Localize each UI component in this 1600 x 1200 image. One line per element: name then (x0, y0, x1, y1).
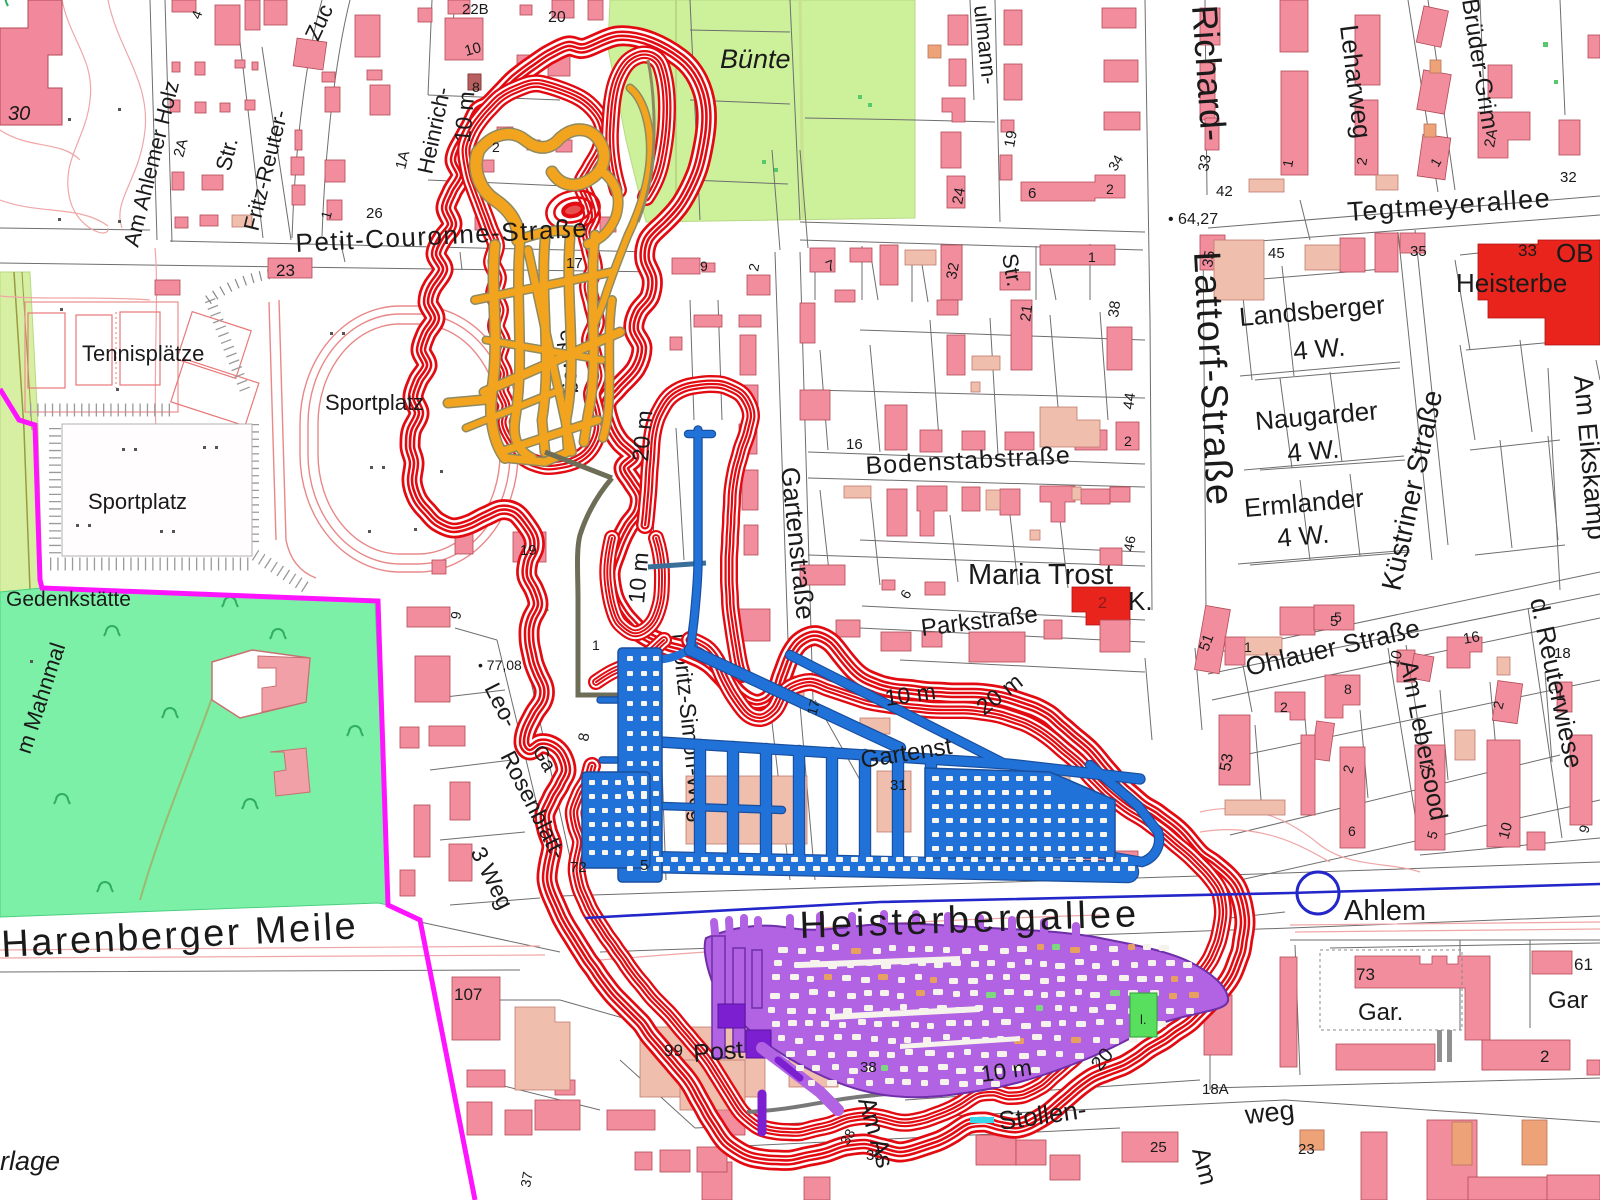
svg-text:19: 19 (520, 542, 537, 559)
svg-text:10 m: 10 m (449, 90, 479, 143)
svg-text:73: 73 (1356, 965, 1375, 984)
svg-text:Gar.: Gar. (1358, 999, 1403, 1026)
svg-text:Gar: Gar (1548, 987, 1588, 1014)
svg-text:23: 23 (276, 261, 295, 280)
svg-text:2: 2 (492, 139, 500, 155)
svg-text:46: 46 (1120, 534, 1138, 552)
svg-text:37: 37 (517, 1170, 535, 1188)
svg-text:2: 2 (1124, 433, 1132, 449)
svg-text:61: 61 (1574, 955, 1593, 974)
svg-text:42: 42 (1216, 183, 1233, 200)
svg-text:8: 8 (472, 79, 480, 95)
svg-text:l.: l. (1140, 1012, 1147, 1027)
svg-text:23: 23 (1298, 1141, 1315, 1158)
svg-text:33: 33 (1195, 153, 1215, 172)
svg-text:72: 72 (570, 859, 587, 876)
svg-text:33: 33 (1518, 241, 1537, 260)
svg-text:31: 31 (890, 777, 907, 794)
svg-text:Post: Post (692, 1036, 744, 1068)
svg-text:6: 6 (1028, 185, 1036, 202)
svg-text:4 W.: 4 W. (1276, 519, 1330, 553)
svg-text:1: 1 (1556, 687, 1564, 703)
svg-text:20: 20 (548, 9, 566, 26)
svg-text:6: 6 (1348, 823, 1356, 839)
svg-text:53: 53 (1217, 752, 1237, 773)
svg-text:Sportplatz: Sportplatz (88, 489, 187, 514)
svg-text:44: 44 (1120, 392, 1139, 411)
svg-text:107: 107 (454, 985, 482, 1004)
svg-text:Heisterbe: Heisterbe (1456, 268, 1567, 298)
svg-text:• 77,08: • 77,08 (478, 657, 522, 673)
svg-text:38: 38 (1105, 300, 1124, 319)
svg-text:2: 2 (1098, 595, 1107, 612)
svg-text:35: 35 (1199, 249, 1219, 268)
svg-text:4 W.: 4 W. (1286, 434, 1340, 468)
svg-text:weg: weg (1242, 1095, 1295, 1130)
svg-text:2A: 2A (1481, 128, 1501, 149)
svg-text:2: 2 (1540, 1047, 1549, 1066)
svg-text:21: 21 (1017, 304, 1036, 323)
svg-text:22B: 22B (462, 1, 489, 18)
svg-text:20 m: 20 m (627, 409, 657, 462)
svg-text:32: 32 (943, 261, 963, 280)
svg-text:10 m: 10 m (623, 551, 653, 604)
svg-text:24: 24 (949, 186, 969, 205)
svg-text:30: 30 (8, 103, 30, 125)
svg-text:• 64,27: • 64,27 (1168, 211, 1218, 228)
svg-text:8: 8 (1344, 681, 1352, 697)
svg-text:2: 2 (1280, 699, 1288, 715)
svg-text:Ahlem: Ahlem (1344, 895, 1426, 927)
svg-text:Gedenkstätte: Gedenkstätte (6, 588, 131, 611)
svg-text:17: 17 (566, 255, 583, 272)
svg-text:1: 1 (1088, 249, 1096, 265)
svg-text:18A: 18A (1202, 1081, 1229, 1098)
svg-text:Bünte: Bünte (720, 44, 791, 74)
svg-text:2: 2 (1106, 181, 1114, 197)
svg-text:Maria Trost: Maria Trost (968, 559, 1113, 591)
svg-text:Sportplatz: Sportplatz (325, 390, 424, 415)
svg-text:19: 19 (1001, 129, 1021, 148)
svg-text:18: 18 (1554, 645, 1571, 662)
svg-text:16: 16 (1462, 628, 1481, 648)
svg-text:16: 16 (846, 436, 863, 453)
svg-text:35: 35 (866, 1147, 883, 1164)
svg-text:Tennisplätze: Tennisplätze (82, 341, 204, 366)
svg-text:9: 9 (700, 258, 708, 274)
svg-text:OB: OB (1556, 238, 1594, 268)
svg-text:25: 25 (1150, 1139, 1167, 1156)
svg-text:5: 5 (1334, 609, 1342, 625)
svg-text:1: 1 (1244, 639, 1252, 655)
svg-text:rlage: rlage (0, 1146, 60, 1176)
svg-text:1: 1 (592, 637, 600, 653)
svg-text:26: 26 (366, 205, 383, 222)
svg-text:99: 99 (664, 1041, 683, 1060)
svg-text:32: 32 (1560, 169, 1577, 186)
svg-text:K.: K. (1128, 586, 1153, 616)
svg-text:4 W.: 4 W. (1292, 332, 1346, 366)
svg-text:35: 35 (1410, 243, 1427, 260)
svg-text:38: 38 (860, 1059, 877, 1076)
svg-text:45: 45 (1268, 245, 1285, 262)
svg-text:5: 5 (640, 857, 648, 874)
